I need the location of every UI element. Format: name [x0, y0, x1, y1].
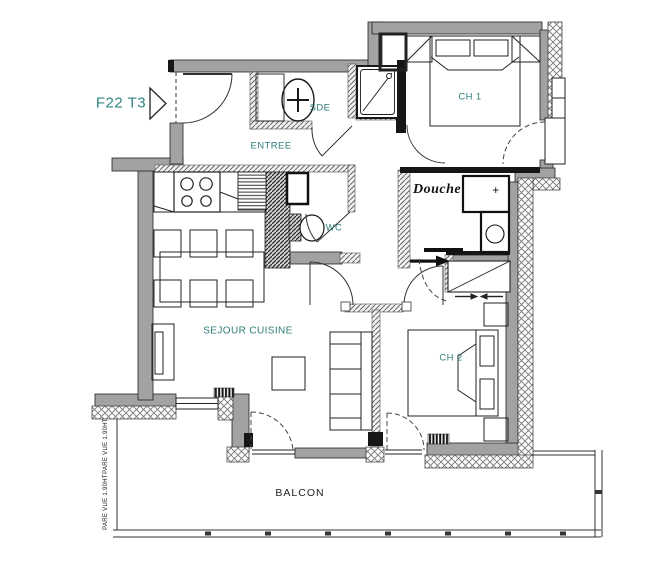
bed-ch1 [430, 36, 520, 126]
washbasin-douche [463, 176, 509, 212]
washbasin-plus-sign: + [492, 183, 499, 197]
sde-door-swing [312, 127, 322, 156]
room-label-balcon: BALCON [275, 487, 324, 499]
double-door-right-swing [404, 266, 443, 305]
wc-duct-box [287, 173, 308, 204]
entry-door-swing [183, 74, 232, 123]
room-label-ch2: CH 2 [439, 353, 462, 364]
unit-label: F22 T3 [96, 95, 146, 112]
room-label-ch1: CH 1 [458, 92, 481, 103]
room-label-sejour-cuisine: SEJOUR CUISINE [203, 326, 293, 337]
shower-tray [357, 66, 398, 118]
ch2-balcony-door-swing [387, 413, 424, 450]
pare-vue-annotation-lower: PARE VUE 1.90HT [103, 474, 109, 530]
bedroom2-furniture [408, 303, 508, 441]
sliding-closet [448, 261, 510, 299]
pare-vue-annotation-upper: PARE VUE 1.90HT [103, 418, 109, 474]
dining-table [160, 252, 264, 302]
floor-plan: F22 T3 ENTREE SDE CH 1 Douche + WC SEJOU… [0, 0, 660, 565]
coffee-table [272, 357, 305, 390]
kitchen-cabinet [238, 172, 266, 210]
double-door-left-swing [310, 262, 353, 305]
nightstand-ch2-top [484, 303, 508, 326]
sde-fixtures [256, 74, 314, 121]
room-label-sde: SDE [310, 103, 331, 114]
floor-plan-drawing [0, 0, 660, 565]
room-label-douche: Douche [413, 182, 461, 198]
ch1-door-swing [407, 125, 445, 163]
ch1-window-door-swing [503, 122, 545, 164]
sofa [330, 332, 372, 430]
room-label-wc: WC [326, 223, 343, 234]
bed-ch2 [408, 330, 498, 416]
stove-burners [174, 172, 220, 212]
dining-table-and-chairs [154, 230, 264, 307]
sejour-balcony-door-swing [251, 412, 293, 450]
toilet [300, 215, 324, 241]
nightstand-ch2-bottom [484, 418, 508, 441]
entrance-arrow [150, 88, 166, 119]
room-label-entree: ENTREE [251, 141, 292, 152]
sideboard [152, 324, 174, 380]
direction-arrow [410, 256, 450, 267]
